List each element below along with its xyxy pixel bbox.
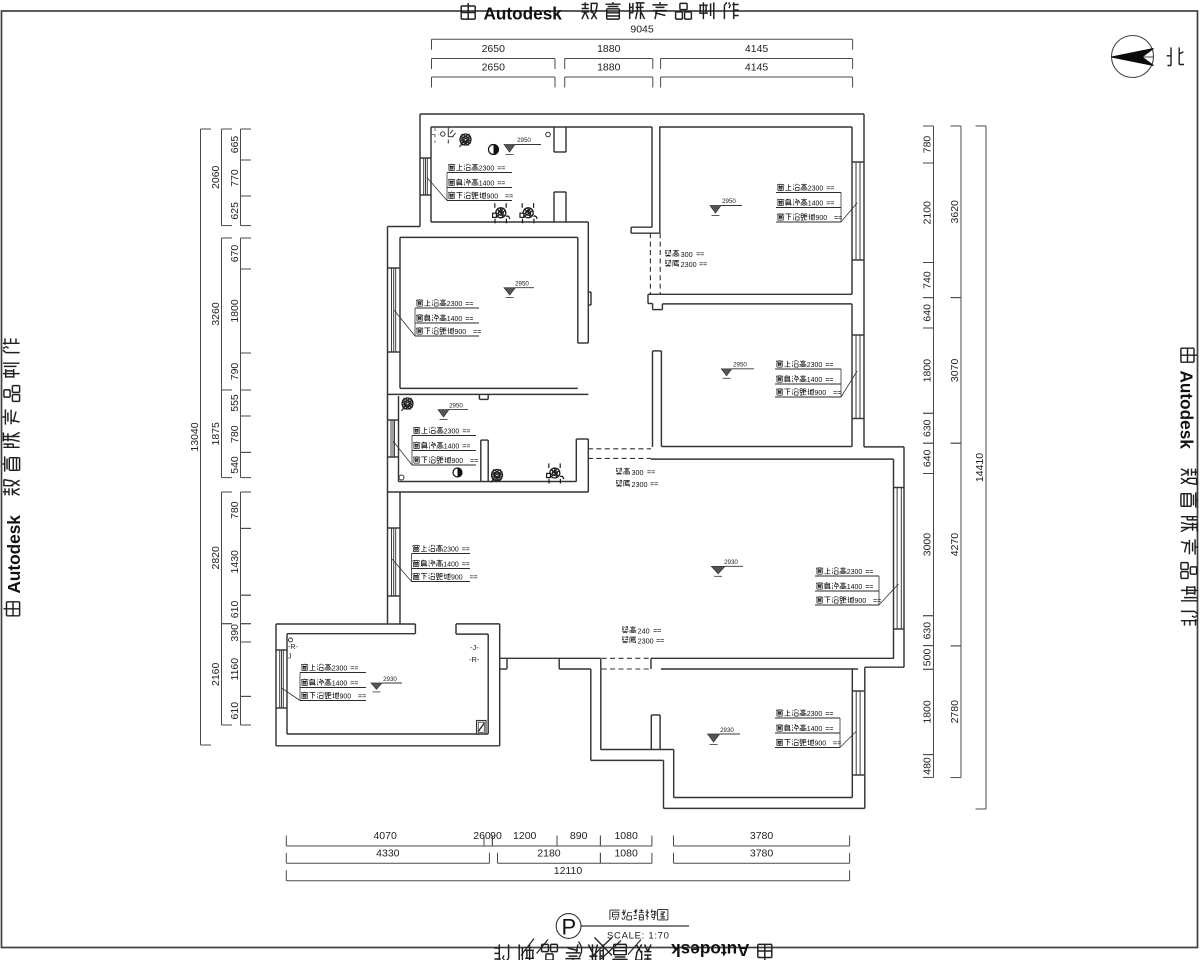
svg-text:2300: 2300 [808,186,824,193]
svg-text:890: 890 [570,830,588,842]
svg-text:1875: 1875 [210,422,222,446]
svg-text:2300: 2300 [443,547,459,554]
svg-text:2820: 2820 [210,546,222,570]
svg-text:14410: 14410 [974,453,986,482]
svg-text:Autodesk: Autodesk [1177,371,1197,450]
svg-text:260: 260 [473,830,491,842]
svg-text:SCALE: 1:70: SCALE: 1:70 [607,931,670,942]
svg-text:630: 630 [922,419,934,437]
svg-text:==: == [826,186,834,193]
svg-text:2300: 2300 [447,301,463,308]
svg-text:1800: 1800 [229,299,241,323]
svg-text:==: == [470,458,478,465]
svg-text:2950: 2950 [515,281,529,288]
svg-text:900: 900 [455,329,467,336]
svg-text:540: 540 [229,456,241,474]
svg-text:==: == [497,166,505,173]
svg-text:==: == [826,201,834,208]
svg-text:==: == [699,262,707,269]
svg-text:1160: 1160 [229,658,241,681]
svg-text:900: 900 [487,194,499,201]
svg-text:640: 640 [922,449,934,467]
svg-text:300: 300 [681,250,693,259]
svg-text:4330: 4330 [376,848,400,860]
svg-text:==: == [865,584,873,591]
svg-text:900: 900 [816,215,828,222]
svg-text:==: == [470,575,478,582]
svg-text:==: == [505,194,513,201]
svg-text:==: == [350,666,358,673]
svg-text:==: == [650,482,658,489]
svg-text:==: == [465,301,473,308]
svg-text:1430: 1430 [229,550,241,574]
svg-text:J: J [288,654,292,661]
svg-text:2300: 2300 [847,569,863,576]
svg-text:2300: 2300 [807,711,823,718]
svg-text:790: 790 [229,363,241,381]
svg-text:12110: 12110 [554,865,583,877]
svg-text:900: 900 [340,694,352,701]
svg-text:770: 770 [229,169,241,187]
svg-text:780: 780 [922,136,934,154]
svg-text:==: == [473,329,481,336]
svg-text:1400: 1400 [847,584,863,591]
svg-text:-R-: -R- [469,655,480,664]
svg-text:==: == [825,726,833,733]
svg-text:==: == [865,569,873,576]
svg-text:4070: 4070 [373,830,397,842]
svg-text:2950: 2950 [733,362,747,369]
svg-text:2930: 2930 [720,727,734,734]
svg-text:780: 780 [229,501,241,519]
svg-text:2650: 2650 [482,43,506,55]
svg-text:==: == [653,628,661,635]
svg-text:1400: 1400 [443,562,459,569]
svg-text:1800: 1800 [922,359,934,383]
svg-text:==: == [656,638,664,645]
svg-text:555: 555 [229,394,241,412]
svg-text:==: == [825,377,833,384]
svg-text:3070: 3070 [949,359,961,383]
svg-text:610: 610 [229,702,241,720]
svg-text:1200: 1200 [513,830,537,842]
svg-text:500: 500 [922,649,934,667]
svg-text:1400: 1400 [444,444,460,451]
svg-text:1400: 1400 [807,726,823,733]
svg-text:9045: 9045 [630,24,654,36]
svg-text:3620: 3620 [949,200,961,224]
svg-text:2060: 2060 [210,165,222,189]
svg-text:2160: 2160 [210,663,222,687]
svg-text:2300: 2300 [332,666,348,673]
svg-text:2100: 2100 [922,201,934,225]
svg-text:2650: 2650 [482,62,506,74]
svg-text:==: == [497,181,505,188]
svg-text:240: 240 [638,627,650,636]
svg-text:-R-: -R- [288,644,298,651]
svg-text:2950: 2950 [517,137,531,144]
svg-text:1400: 1400 [807,377,823,384]
svg-text:1080: 1080 [614,848,638,860]
svg-text:665: 665 [229,136,241,154]
svg-text:Autodesk: Autodesk [484,4,563,24]
svg-text:1400: 1400 [447,316,463,323]
svg-text:900: 900 [815,741,827,748]
svg-text:2180: 2180 [537,848,561,860]
svg-text:2300: 2300 [444,429,460,436]
svg-text:3780: 3780 [750,848,774,860]
svg-text:1080: 1080 [614,830,638,842]
svg-text:780: 780 [229,425,241,443]
svg-text:==: == [462,444,470,451]
svg-text:2950: 2950 [722,198,736,205]
svg-text:1880: 1880 [597,62,621,74]
svg-text:900: 900 [451,575,463,582]
svg-text:480: 480 [922,757,934,775]
svg-text:==: == [696,252,704,259]
svg-text:2300: 2300 [632,480,648,489]
svg-text:Autodesk: Autodesk [671,940,750,960]
svg-text:==: == [350,681,358,688]
svg-text:90: 90 [490,830,502,842]
svg-text:4270: 4270 [949,533,961,557]
svg-text:1800: 1800 [922,700,934,724]
svg-text:1400: 1400 [808,201,824,208]
svg-text:3780: 3780 [750,830,774,842]
svg-text:==: == [825,362,833,369]
svg-text:==: == [462,562,470,569]
svg-text:900: 900 [452,458,464,465]
svg-text:625: 625 [229,202,241,220]
svg-text:300: 300 [632,468,644,477]
svg-text:4145: 4145 [745,62,769,74]
svg-text:==: == [465,316,473,323]
svg-text:2950: 2950 [449,403,463,410]
svg-text:3260: 3260 [210,302,222,326]
svg-text:4145: 4145 [745,43,769,55]
svg-text:2930: 2930 [724,559,738,566]
svg-text:900: 900 [855,598,867,605]
svg-text:==: == [833,390,841,397]
svg-text:Autodesk: Autodesk [4,515,24,594]
svg-text:13040: 13040 [189,422,201,451]
svg-text:==: == [462,547,470,554]
svg-text:1400: 1400 [479,181,495,188]
svg-text:3000: 3000 [922,533,934,557]
svg-text:670: 670 [229,245,241,263]
svg-text:2300: 2300 [479,166,495,173]
svg-text:==: == [825,711,833,718]
svg-text:2300: 2300 [807,362,823,369]
svg-text:==: == [358,694,366,701]
svg-text:900: 900 [815,390,827,397]
svg-text:==: == [462,429,470,436]
svg-text:1400: 1400 [332,681,348,688]
svg-text:2300: 2300 [681,260,697,269]
svg-text:2930: 2930 [383,676,397,683]
svg-text:630: 630 [922,622,934,640]
svg-text:P: P [561,915,576,940]
svg-text:1880: 1880 [597,43,621,55]
svg-text:2780: 2780 [949,700,961,724]
svg-text:740: 740 [922,271,934,289]
svg-text:390: 390 [229,624,241,642]
svg-text:-J-: -J- [470,643,479,652]
svg-text:610: 610 [229,601,241,619]
svg-text:640: 640 [922,304,934,322]
svg-text:2300: 2300 [638,637,654,646]
svg-text:==: == [647,470,655,477]
